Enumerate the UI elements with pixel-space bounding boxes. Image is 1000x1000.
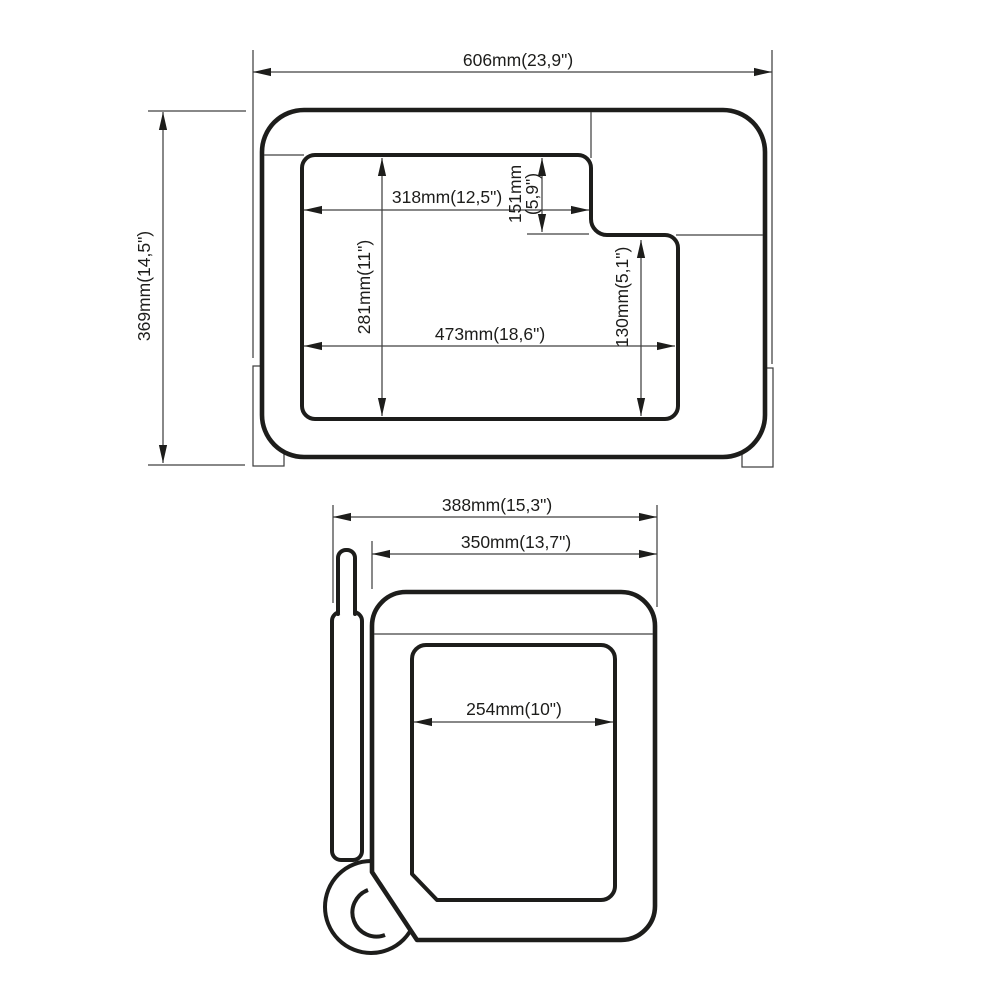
- dim-lid-width-label: 318mm(12,5"): [392, 187, 502, 207]
- technical-drawing: 606mm(23,9") 369mm(14,5") 318mm(12,5") 1…: [0, 0, 1000, 1000]
- dim-notch-height-label-line2: (5,9"): [522, 173, 542, 215]
- side-view-inner-opening: [412, 645, 615, 900]
- top-view: 606mm(23,9") 369mm(14,5") 318mm(12,5") 1…: [134, 50, 773, 467]
- dim-total-width-label: 388mm(15,3"): [442, 495, 552, 515]
- dim-opening-width-label: 473mm(18,6"): [435, 324, 545, 344]
- dim-opening-depth-right-label: 130mm(5,1"): [612, 247, 632, 348]
- side-view-handle-bar: [332, 612, 362, 860]
- dim-opening-depth-left-label: 281mm(11"): [354, 240, 374, 334]
- dim-outer-height-label: 369mm(14,5"): [134, 231, 154, 341]
- side-view: 388mm(15,3") 350mm(13,7") 254mm(10"): [325, 495, 657, 953]
- drawing-canvas: 606mm(23,9") 369mm(14,5") 318mm(12,5") 1…: [0, 0, 1000, 1000]
- side-view-handle-grip: [338, 550, 355, 614]
- dim-outer-width-label: 606mm(23,9"): [463, 50, 573, 70]
- dim-side-opening-width-label: 254mm(10"): [466, 699, 562, 719]
- dim-body-width-label: 350mm(13,7"): [461, 532, 571, 552]
